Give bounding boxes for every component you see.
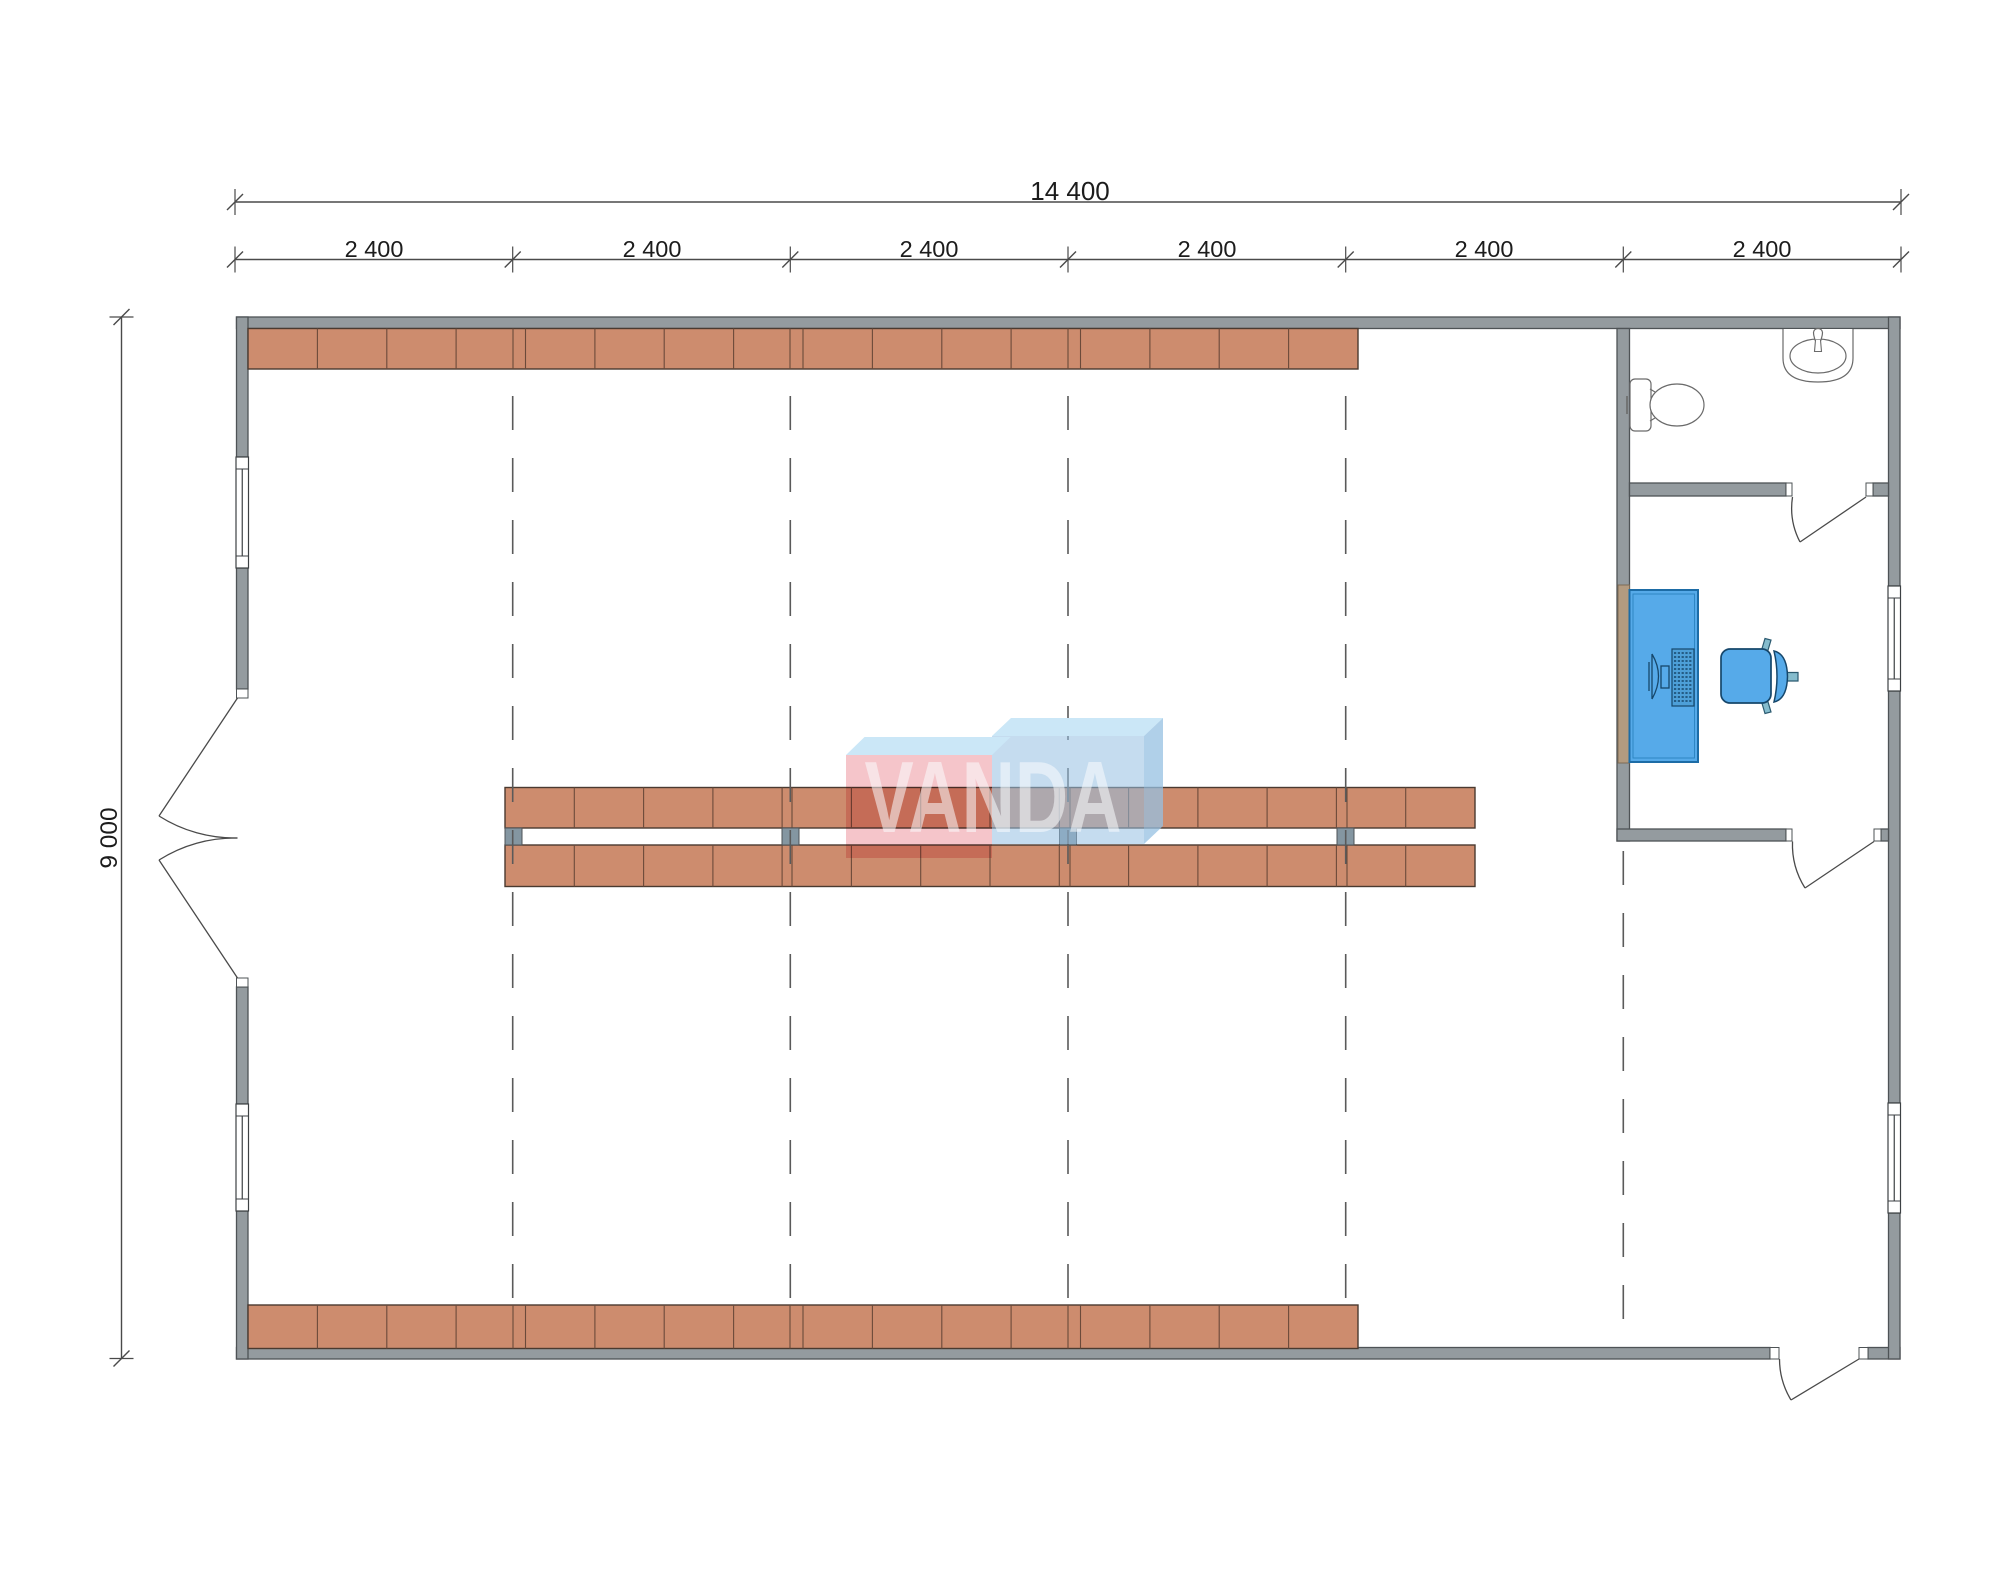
- svg-text:2 400: 2 400: [623, 236, 682, 262]
- svg-text:2 400: 2 400: [345, 236, 404, 262]
- svg-text:2 400: 2 400: [900, 236, 959, 262]
- svg-text:VANDA: VANDA: [864, 741, 1121, 854]
- svg-text:2 400: 2 400: [1178, 236, 1237, 262]
- svg-text:2 400: 2 400: [1455, 236, 1514, 262]
- svg-text:2 400: 2 400: [1733, 236, 1792, 262]
- svg-text:14 400: 14 400: [1030, 176, 1110, 206]
- svg-text:9 000: 9 000: [96, 807, 123, 868]
